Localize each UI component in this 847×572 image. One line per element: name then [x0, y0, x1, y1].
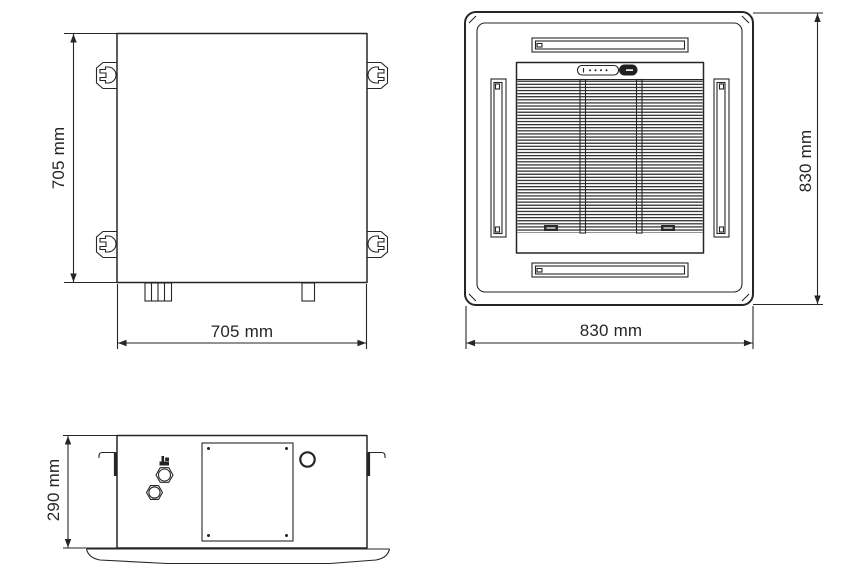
screw-icon [285, 447, 288, 450]
air-outlet-left [491, 79, 506, 237]
display-receiver-bar [578, 65, 638, 76]
unit-body-outline [117, 34, 367, 283]
access-panel [202, 443, 293, 541]
terminal-block [145, 283, 172, 301]
screw-icon [207, 534, 210, 537]
unit-side-outline [117, 436, 367, 549]
top-view-width-dim-label: 705 mm [211, 322, 274, 341]
knockout-hole [300, 452, 314, 466]
top-view: 705 mm 705 mm [49, 34, 388, 350]
drawing-canvas: 705 mm 705 mm 830 mm [0, 0, 847, 572]
panel-view-width-dim-label: 830 mm [580, 321, 643, 340]
grille-slats [518, 80, 703, 234]
panel-view: 830 mm 830 mm [465, 12, 823, 349]
mounting-lug-top-right [367, 63, 388, 89]
mounting-lug-bottom-right [367, 232, 388, 258]
pipe-fitting-valve [156, 456, 173, 482]
panel-view-height-dim-label: 830 mm [796, 130, 815, 193]
grille-latch-right [661, 225, 675, 231]
side-view-height-dim-label: 290 mm [44, 459, 63, 522]
pipe-fitting-nut [147, 486, 163, 500]
air-outlet-top [532, 38, 688, 52]
dimension-drawing: 705 mm 705 mm 830 mm [0, 0, 847, 572]
mounting-lug-bottom-left [97, 232, 118, 258]
air-outlet-right [714, 79, 729, 237]
top-view-height-dim-label: 705 mm [49, 127, 68, 190]
suspension-hook-right [368, 453, 385, 477]
intake-grille [517, 63, 704, 254]
top-view-height-dimension: 705 mm [49, 34, 117, 283]
grille-latch-left [544, 225, 558, 231]
air-outlet-bottom [532, 263, 688, 277]
side-view: 290 mm [44, 436, 390, 564]
screw-icon [285, 534, 288, 537]
panel-view-width-dimension: 830 mm [466, 306, 753, 349]
suspension-hook-left [99, 453, 116, 477]
drain-stub [302, 283, 315, 301]
ceiling-panel-profile [87, 549, 390, 564]
mounting-lug-top-left [97, 63, 118, 89]
screw-icon [207, 447, 210, 450]
panel-view-height-dimension: 830 mm [753, 13, 823, 305]
top-view-width-dimension: 705 mm [118, 284, 367, 349]
